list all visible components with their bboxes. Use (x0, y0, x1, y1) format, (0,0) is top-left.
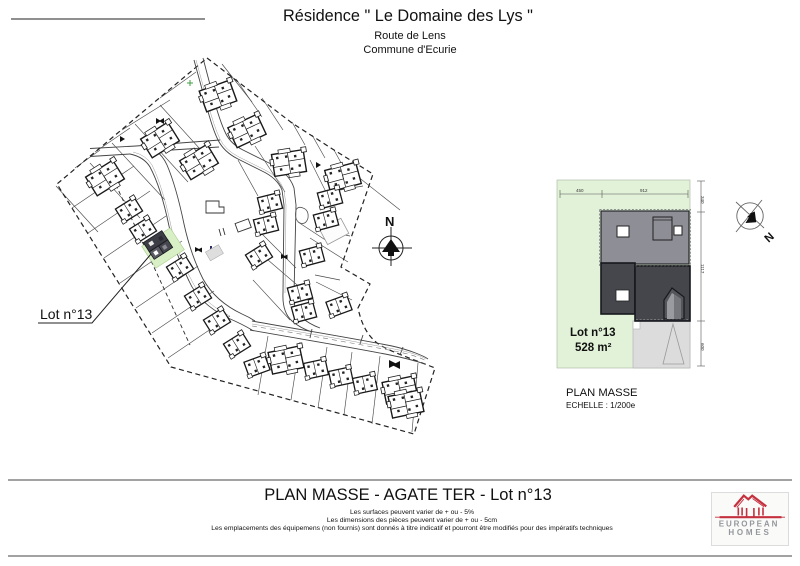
svg-text:450: 450 (576, 188, 584, 193)
svg-text:Lot n°13: Lot n°13 (40, 306, 93, 322)
svg-text:600: 600 (700, 343, 705, 351)
svg-text:528 m²: 528 m² (575, 342, 612, 354)
svg-text:HOMES: HOMES (728, 528, 771, 537)
svg-text:ECHELLE : 1/200e: ECHELLE : 1/200e (566, 401, 636, 410)
svg-text:PLAN MASSE: PLAN MASSE (566, 387, 638, 399)
svg-text:EUROPEAN: EUROPEAN (719, 519, 780, 528)
svg-text:Lot n°13: Lot n°13 (570, 327, 616, 339)
svg-text:1117: 1117 (700, 264, 705, 274)
svg-text:N: N (763, 231, 777, 245)
svg-text:340: 340 (700, 196, 705, 204)
svg-text:N: N (385, 214, 394, 229)
svg-text:912: 912 (640, 188, 648, 193)
